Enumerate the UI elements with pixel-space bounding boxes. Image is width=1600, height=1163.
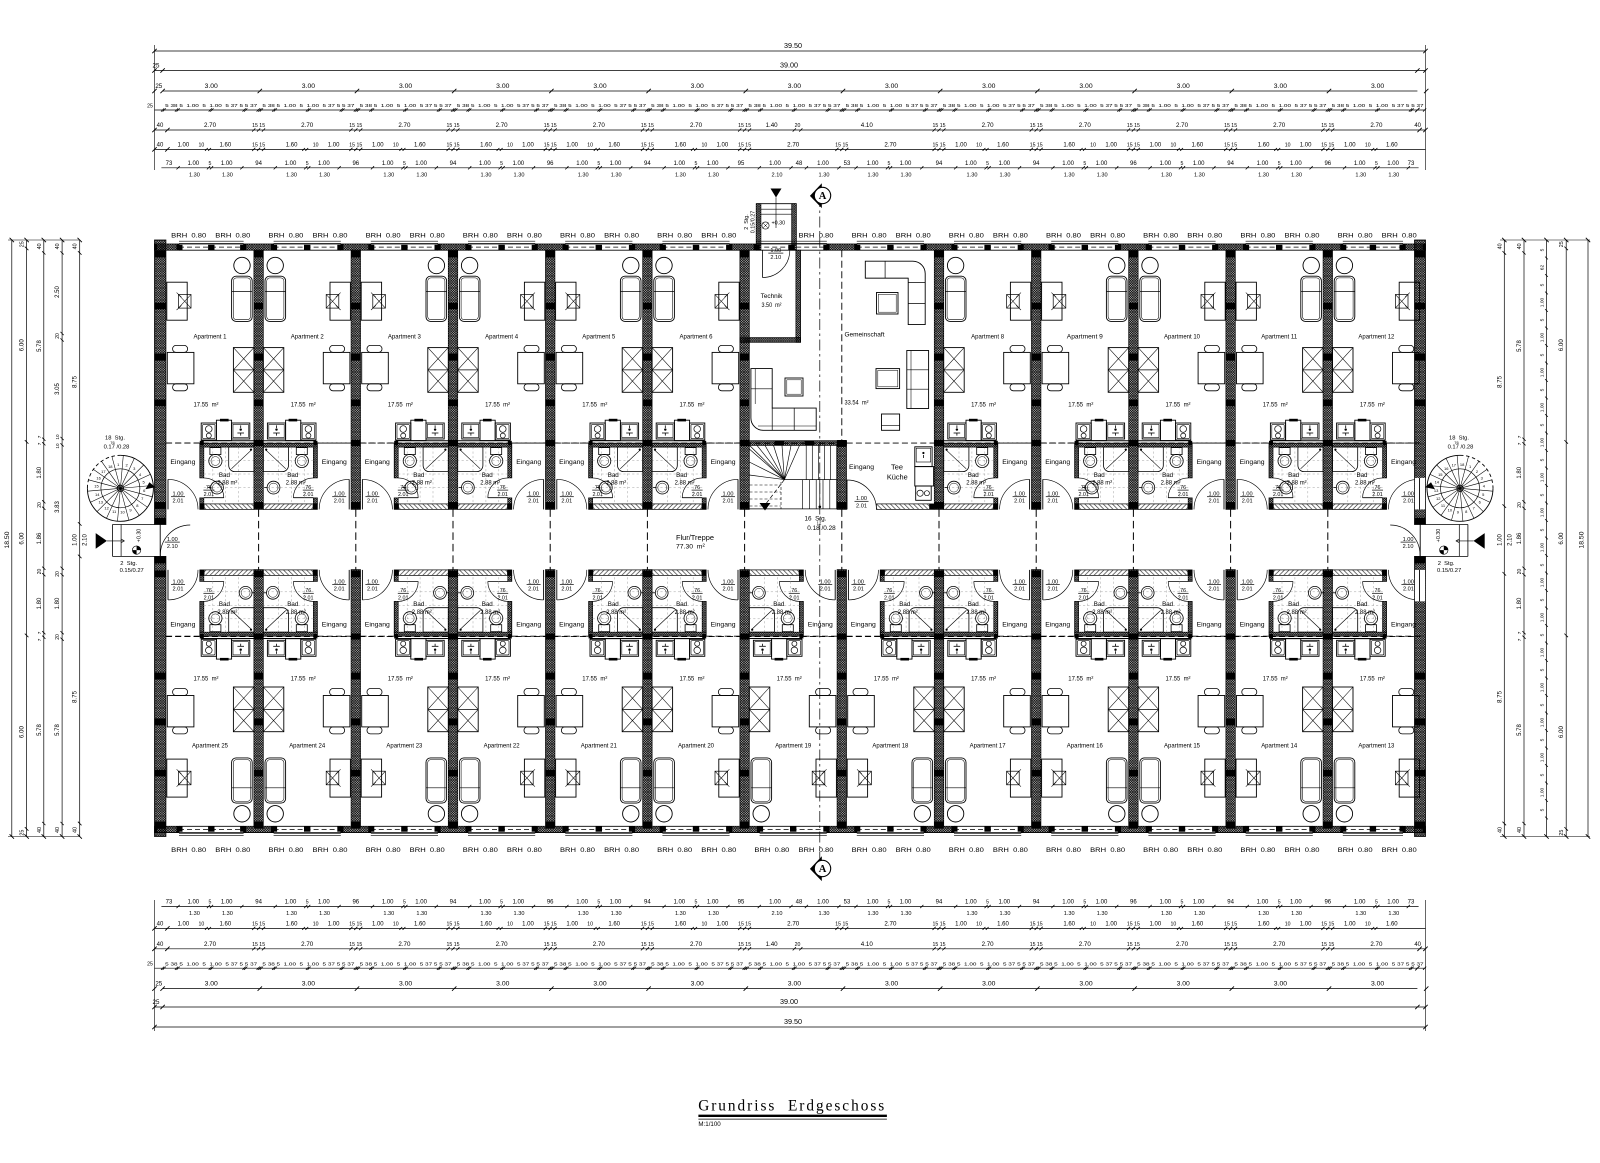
svg-text:1.30: 1.30 [1064,172,1075,178]
svg-text:BRH 0.80: BRH 0.80 [993,233,1028,240]
svg-text:1.60: 1.60 [480,143,492,149]
svg-text:Bad: Bad [1162,601,1174,608]
svg-text:2.01: 2.01 [367,587,378,593]
svg-text:1.60: 1.60 [414,143,426,149]
svg-text:2.01: 2.01 [789,595,800,601]
svg-text:39.00: 39.00 [780,61,798,70]
svg-text:15 15: 15 15 [835,921,848,927]
svg-text:5.78: 5.78 [37,724,43,736]
svg-text:Eingang: Eingang [170,459,195,466]
svg-text:8.75: 8.75 [72,690,79,703]
svg-text:2.01: 2.01 [884,595,895,601]
svg-text:2.88 m²: 2.88 m² [412,480,432,487]
svg-text:40: 40 [55,243,61,249]
svg-text:17.55 m²: 17.55 m² [388,401,413,408]
svg-text:BRH 0.80: BRH 0.80 [268,233,303,240]
svg-text:5 38 5 1.00 5 1.00 5 37 5: 5 38 5 1.00 5 1.00 5 37 5 5 37 [165,103,257,109]
svg-text:39.50: 39.50 [784,41,802,50]
svg-text:1.00: 1.00 [318,900,330,906]
svg-text:0.15/0.27: 0.15/0.27 [750,211,756,233]
svg-text:40: 40 [157,123,164,129]
svg-text:2.01: 2.01 [173,587,184,593]
svg-text:2.01: 2.01 [398,595,409,601]
svg-text:1.00: 1.00 [1150,143,1162,149]
svg-text:BRH 0.80: BRH 0.80 [215,847,250,854]
svg-text:76: 76 [110,440,115,445]
svg-text:15 15: 15 15 [933,142,946,148]
svg-text:7: 7 [1517,631,1522,634]
svg-text:Apartment 3: Apartment 3 [388,334,421,341]
svg-text:5: 5 [986,161,989,167]
svg-text:15 15: 15 15 [1030,942,1043,948]
svg-text:94: 94 [1033,900,1040,906]
svg-text:17.55 m²: 17.55 m² [1360,401,1385,408]
svg-text:15 15: 15 15 [835,142,848,148]
svg-text:1.00: 1.00 [1540,367,1546,377]
svg-text:1.80: 1.80 [55,597,61,609]
svg-text:5: 5 [888,900,891,906]
svg-text:15 15: 15 15 [1321,942,1334,948]
svg-text:BRH 0.80: BRH 0.80 [366,847,401,854]
svg-text:5: 5 [1540,633,1546,636]
svg-text:15 15: 15 15 [738,142,751,148]
svg-text:5 38 5 1.00 5 1.00 5 37 5: 5 38 5 1.00 5 1.00 5 37 5 5 37 [943,103,1035,109]
svg-text:5 38 5 1.00 5 1.00 5 37 5: 5 38 5 1.00 5 1.00 5 37 5 5 37 [1332,961,1424,967]
svg-text:1.00: 1.00 [512,900,524,906]
svg-text:1.30: 1.30 [1161,172,1172,178]
svg-text:BRH 0.80: BRH 0.80 [852,847,887,854]
svg-text:3.00: 3.00 [982,981,995,988]
svg-text:1.30: 1.30 [611,911,622,917]
svg-text:Bad: Bad [219,472,231,479]
svg-text:1.00: 1.00 [1300,143,1312,149]
svg-text:1.60: 1.60 [997,143,1009,149]
svg-text:BRH 0.80: BRH 0.80 [701,847,736,854]
svg-text:2.88 m²: 2.88 m² [898,609,918,616]
svg-text:1.00: 1.00 [1096,900,1108,906]
svg-text:94: 94 [1227,900,1234,906]
svg-text:2.88 m²: 2.88 m² [480,609,500,616]
svg-text:BRH 0.80: BRH 0.80 [949,233,984,240]
svg-text:Eingang: Eingang [322,622,347,629]
svg-text:Eingang: Eingang [1002,459,1027,466]
svg-text:2 Stg.: 2 Stg. [744,214,750,230]
svg-text:1.30: 1.30 [675,911,686,917]
svg-text:1.80: 1.80 [37,466,43,478]
svg-text:5: 5 [1540,668,1546,671]
svg-text:5 38 5 1.00 5 1.00 5 37 5: 5 38 5 1.00 5 1.00 5 37 5 5 37 [1040,961,1132,967]
svg-text:1.00: 1.00 [610,161,622,167]
svg-text:40: 40 [73,827,79,833]
svg-text:15 15: 15 15 [544,942,557,948]
svg-text:1.30: 1.30 [868,911,879,917]
svg-text:2.01: 2.01 [497,595,508,601]
svg-text:1.00: 1.00 [479,900,491,906]
svg-text:2.70: 2.70 [301,941,314,948]
svg-text:73: 73 [166,900,173,906]
svg-text:2.70: 2.70 [1079,122,1092,129]
svg-text:5 38 5 1.00 5 1.00 5 37 5: 5 38 5 1.00 5 1.00 5 37 5 5 37 [1137,961,1229,967]
svg-text:17.55 m²: 17.55 m² [971,676,996,683]
svg-text:Eingang: Eingang [559,622,584,629]
svg-text:BRH 0.80: BRH 0.80 [463,847,498,854]
svg-text:Apartment 12: Apartment 12 [1358,334,1394,341]
svg-text:2.10: 2.10 [770,255,781,261]
svg-text:5: 5 [1375,161,1378,167]
svg-text:Bad: Bad [287,601,299,608]
svg-text:1.30: 1.30 [1194,172,1205,178]
svg-text:2.70: 2.70 [496,122,509,129]
svg-text:Eingang: Eingang [1240,622,1265,629]
svg-text:1.30: 1.30 [901,172,912,178]
svg-text:1.00: 1.00 [1193,161,1205,167]
svg-text:3.00: 3.00 [399,83,412,90]
svg-text:15 15: 15 15 [252,142,265,148]
svg-text:20: 20 [55,571,61,577]
svg-text:3.00: 3.00 [593,981,606,988]
svg-text:10: 10 [976,143,982,149]
svg-text:Apartment 8: Apartment 8 [971,334,1004,341]
svg-text:1.00: 1.00 [1290,161,1302,167]
svg-text:12: 12 [1436,496,1441,501]
svg-text:1.00: 1.00 [328,143,340,149]
svg-text:1.00: 1.00 [1290,900,1302,906]
svg-text:3.05: 3.05 [55,383,61,395]
svg-text:Bad: Bad [413,472,425,479]
svg-text:Eingang: Eingang [1045,459,1070,466]
svg-text:A: A [819,864,827,875]
svg-text:5: 5 [1540,318,1546,321]
svg-text:1.60: 1.60 [220,922,232,928]
svg-text:2.88 m²: 2.88 m² [966,609,986,616]
svg-text:5: 5 [986,900,989,906]
svg-text:48: 48 [796,900,803,906]
svg-text:1.00: 1.00 [673,161,685,167]
svg-text:2.01: 2.01 [303,595,314,601]
svg-text:15 15: 15 15 [1224,123,1237,129]
svg-text:15 15: 15 15 [349,123,362,129]
svg-text:1.00: 1.00 [1497,534,1503,546]
svg-text:1.00: 1.00 [1387,161,1399,167]
svg-text:3.00: 3.00 [496,83,509,90]
svg-text:3.00: 3.00 [302,981,315,988]
svg-text:BRH 0.80: BRH 0.80 [410,233,445,240]
svg-text:40: 40 [157,921,164,927]
svg-text:1.00: 1.00 [1193,900,1205,906]
svg-text:2.70: 2.70 [398,122,411,129]
svg-text:3.00: 3.00 [885,83,898,90]
svg-text:2.01: 2.01 [334,499,345,505]
svg-text:25: 25 [1559,830,1565,836]
svg-text:94: 94 [255,161,262,167]
svg-text:2.70: 2.70 [1176,122,1189,129]
svg-text:5: 5 [1278,161,1281,167]
svg-text:Apartment 18: Apartment 18 [872,743,908,750]
svg-text:15 15: 15 15 [1127,123,1140,129]
svg-text:Apartment 24: Apartment 24 [289,743,325,750]
svg-text:1.60: 1.60 [1192,143,1204,149]
svg-text:2.01: 2.01 [1178,595,1189,601]
svg-text:94: 94 [644,161,651,167]
svg-text:2.70: 2.70 [884,921,897,928]
svg-text:1.00: 1.00 [1300,922,1312,928]
svg-text:1.00: 1.00 [817,900,829,906]
svg-text:2.70: 2.70 [982,122,995,129]
svg-text:1.30: 1.30 [222,172,233,178]
svg-text:Bad: Bad [482,601,494,608]
svg-text:5 38 5 1.00 5 1.00 5 37 5: 5 38 5 1.00 5 1.00 5 37 5 5 37 [943,961,1035,967]
svg-text:1.00: 1.00 [1540,402,1546,412]
svg-text:+0.30: +0.30 [1436,529,1442,543]
svg-text:1.30: 1.30 [1388,172,1399,178]
svg-text:94: 94 [936,161,943,167]
svg-text:3.83: 3.83 [55,501,61,513]
svg-text:2.70: 2.70 [1079,941,1092,948]
svg-text:1.60: 1.60 [675,922,687,928]
svg-text:96: 96 [352,161,359,167]
svg-text:10: 10 [1171,143,1177,149]
svg-text:15 15: 15 15 [252,942,265,948]
svg-text:Apartment 20: Apartment 20 [678,743,714,750]
svg-text:2.01: 2.01 [1242,499,1253,505]
svg-text:Apartment 11: Apartment 11 [1261,334,1297,341]
svg-text:Bad: Bad [1356,601,1368,608]
svg-text:1.00: 1.00 [717,143,729,149]
svg-text:73: 73 [166,161,173,167]
svg-text:1.00: 1.00 [328,922,340,928]
svg-text:BRH 0.80: BRH 0.80 [410,847,445,854]
svg-text:25: 25 [20,830,26,836]
svg-text:1.00: 1.00 [285,900,297,906]
svg-text:Bad: Bad [676,601,688,608]
svg-text:17.55 m²: 17.55 m² [485,676,510,683]
svg-text:1.00: 1.00 [1540,507,1546,517]
svg-text:1.00: 1.00 [372,143,384,149]
svg-text:1.40: 1.40 [766,122,779,129]
svg-text:17.55 m²: 17.55 m² [291,401,316,408]
svg-text:2 Stg.: 2 Stg. [1438,561,1455,567]
svg-text:2.01: 2.01 [334,587,345,593]
svg-text:2.01: 2.01 [367,499,378,505]
svg-text:Apartment 23: Apartment 23 [386,743,422,750]
svg-text:1.00: 1.00 [479,161,491,167]
svg-text:BRH 0.80: BRH 0.80 [1285,847,1320,854]
svg-text:1.00: 1.00 [1540,472,1546,482]
svg-text:1.00: 1.00 [382,900,394,906]
svg-text:1.00: 1.00 [1150,922,1162,928]
svg-text:1.30: 1.30 [222,911,233,917]
svg-text:Flur/Treppe: Flur/Treppe [676,533,714,542]
svg-text:Grundriss Erdgeschoss: Grundriss Erdgeschoss [698,1097,886,1114]
svg-text:1.30: 1.30 [675,172,686,178]
svg-text:15 15: 15 15 [1030,123,1043,129]
svg-text:25: 25 [153,63,160,70]
svg-text:BRH 0.80: BRH 0.80 [1285,233,1320,240]
svg-text:BRH 0.80: BRH 0.80 [1046,233,1081,240]
svg-text:17.55 m²: 17.55 m² [1263,676,1288,683]
svg-text:15 15: 15 15 [447,123,460,129]
svg-text:17.55 m²: 17.55 m² [680,401,705,408]
svg-text:1.30: 1.30 [708,172,719,178]
svg-text:17.55 m²: 17.55 m² [680,676,705,683]
svg-text:40: 40 [1497,243,1503,249]
svg-text:5: 5 [1540,563,1546,566]
svg-text:2.01: 2.01 [983,595,994,601]
svg-text:73: 73 [1408,161,1415,167]
svg-text:15: 15 [1438,472,1443,477]
svg-text:17.55 m²: 17.55 m² [1068,401,1093,408]
svg-text:16: 16 [96,476,101,481]
svg-text:1.30: 1.30 [319,911,330,917]
svg-text:Eingang: Eingang [1391,459,1416,466]
svg-text:4.10: 4.10 [861,122,874,129]
svg-text:A: A [819,191,827,202]
svg-text:1.00: 1.00 [1354,900,1366,906]
svg-text:Apartment 15: Apartment 15 [1164,743,1200,750]
svg-text:7: 7 [37,442,42,445]
svg-text:10: 10 [976,922,982,928]
svg-text:1.00: 1.00 [717,922,729,928]
svg-text:15 15: 15 15 [1224,942,1237,948]
svg-text:5: 5 [500,161,503,167]
svg-text:1.00: 1.00 [867,900,879,906]
svg-text:2.01: 2.01 [1242,587,1253,593]
svg-text:1.00: 1.00 [900,900,912,906]
svg-text:15 15: 15 15 [252,921,265,927]
svg-text:Bad: Bad [1094,472,1106,479]
svg-text:5: 5 [888,161,891,167]
svg-text:BRH 0.80: BRH 0.80 [560,847,595,854]
svg-text:1.00: 1.00 [566,922,578,928]
svg-text:25: 25 [147,104,153,110]
svg-text:2.70: 2.70 [787,921,800,928]
svg-text:2.01: 2.01 [1403,499,1414,505]
svg-text:1.00: 1.00 [372,922,384,928]
svg-text:94: 94 [450,900,457,906]
svg-text:40: 40 [73,243,79,249]
svg-text:1.00: 1.00 [566,143,578,149]
svg-text:3.00: 3.00 [691,83,704,90]
svg-text:15 15: 15 15 [738,123,751,129]
svg-text:40: 40 [1497,827,1503,833]
svg-text:5 38 5 1.00 5 1.00 5 37 5: 5 38 5 1.00 5 1.00 5 37 5 5 37 [360,961,452,967]
svg-text:25: 25 [147,961,153,967]
svg-text:5 38 5 1.00 5 1.00 5 37 5: 5 38 5 1.00 5 1.00 5 37 5 5 37 [651,103,743,109]
svg-text:15 15: 15 15 [641,921,654,927]
svg-text:Eingang: Eingang [516,622,541,629]
svg-text:2.01: 2.01 [592,595,603,601]
svg-text:3.00: 3.00 [302,83,315,90]
svg-text:15 15: 15 15 [252,123,265,129]
svg-text:40: 40 [1517,243,1523,249]
svg-text:BRH 0.80: BRH 0.80 [993,847,1028,854]
svg-text:16 Stg.: 16 Stg. [804,516,826,523]
svg-text:1.00: 1.00 [1344,143,1356,149]
svg-text:3.00: 3.00 [1371,981,1384,988]
svg-text:5 38 5 1.00 5 1.00 5 37 5: 5 38 5 1.00 5 1.00 5 37 5 5 37 [360,103,452,109]
svg-text:1.00: 1.00 [512,161,524,167]
svg-text:25: 25 [20,241,26,247]
svg-text:15 15: 15 15 [933,921,946,927]
svg-text:1.30: 1.30 [1355,172,1366,178]
svg-text:1.30: 1.30 [1355,911,1366,917]
svg-text:1.30: 1.30 [1097,911,1108,917]
svg-text:0.18 /0.28: 0.18 /0.28 [807,525,836,532]
svg-text:5: 5 [1540,808,1546,811]
svg-text:5: 5 [500,900,503,906]
svg-text:1.00: 1.00 [1540,612,1546,622]
svg-text:1.60: 1.60 [1386,143,1398,149]
svg-text:Apartment 2: Apartment 2 [291,334,324,341]
svg-text:Bad: Bad [413,601,425,608]
svg-text:5: 5 [1540,773,1546,776]
svg-text:5: 5 [1083,900,1086,906]
svg-text:10: 10 [702,143,708,149]
svg-text:BRH 0.80: BRH 0.80 [507,847,542,854]
svg-text:3.00: 3.00 [205,83,218,90]
svg-text:15 15: 15 15 [641,942,654,948]
svg-text:1.00: 1.00 [769,161,781,167]
svg-text:1.30: 1.30 [514,911,525,917]
svg-text:BRH 0.80: BRH 0.80 [1143,233,1178,240]
svg-text:+0.30: +0.30 [136,529,142,543]
svg-text:2.01: 2.01 [1178,492,1189,498]
svg-text:1.00: 1.00 [1354,161,1366,167]
svg-text:BRH 0.80: BRH 0.80 [949,847,984,854]
svg-text:1.60: 1.60 [286,922,298,928]
svg-text:1.00: 1.00 [965,161,977,167]
svg-text:Bad: Bad [1288,472,1300,479]
svg-text:94: 94 [450,161,457,167]
svg-text:1.00: 1.00 [382,161,394,167]
svg-text:1.00: 1.00 [1257,161,1269,167]
svg-text:2.10: 2.10 [1508,534,1514,546]
svg-text:5.78: 5.78 [37,340,43,352]
svg-text:2.70: 2.70 [1273,122,1286,129]
svg-text:2.70: 2.70 [204,941,217,948]
svg-text:17.55 m²: 17.55 m² [194,401,219,408]
svg-text:1.00: 1.00 [817,161,829,167]
svg-text:5: 5 [1540,528,1546,531]
svg-text:2.70: 2.70 [982,941,995,948]
svg-text:1.86: 1.86 [1517,532,1523,544]
svg-text:15 15: 15 15 [1321,123,1334,129]
svg-text:2.01: 2.01 [723,499,734,505]
svg-text:Apartment 10: Apartment 10 [1164,334,1200,341]
svg-text:1.00: 1.00 [998,900,1010,906]
svg-text:1.30: 1.30 [416,911,427,917]
svg-text:Apartment 1: Apartment 1 [194,334,227,341]
svg-text:7: 7 [1517,435,1522,438]
svg-text:6.00: 6.00 [1558,726,1565,739]
svg-text:2.70: 2.70 [690,122,703,129]
svg-text:2.01: 2.01 [1372,492,1383,498]
svg-text:40: 40 [55,827,61,833]
svg-text:15 15: 15 15 [738,942,751,948]
svg-text:15 15: 15 15 [738,921,751,927]
svg-text:39.50: 39.50 [784,1017,802,1026]
svg-text:6.00: 6.00 [19,532,26,545]
svg-text:17.55 m²: 17.55 m² [485,401,510,408]
svg-text:1.00: 1.00 [1540,542,1546,552]
svg-text:2.10: 2.10 [83,534,89,546]
svg-text:53: 53 [844,161,851,167]
svg-text:1.30: 1.30 [514,172,525,178]
svg-text:10: 10 [587,143,593,149]
svg-text:Bad: Bad [482,472,494,479]
svg-text:2.88 m²: 2.88 m² [480,480,500,487]
svg-text:1.60: 1.60 [608,143,620,149]
